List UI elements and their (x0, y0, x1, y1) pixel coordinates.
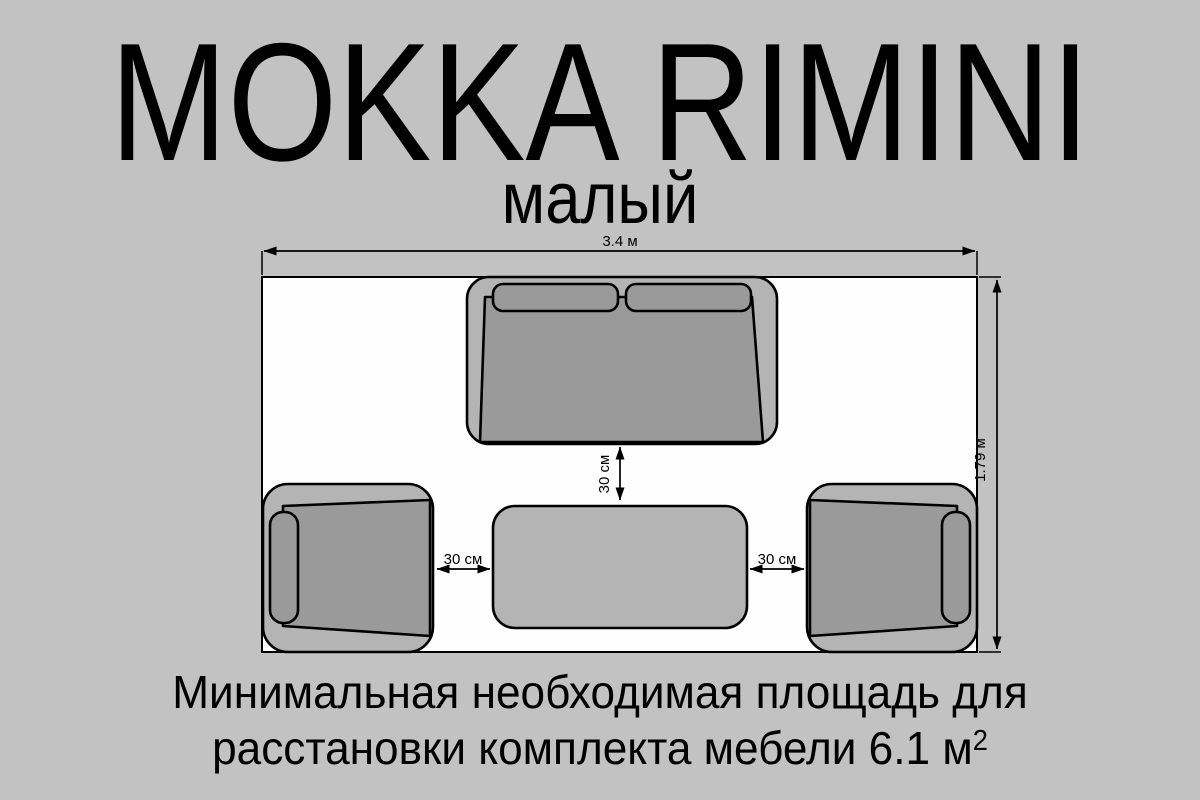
table-right-chair-gap-dimension: 30 см (750, 551, 804, 569)
sofa-back-cushion-right (626, 284, 751, 311)
left-chair-table-gap-label: 30 см (444, 551, 483, 568)
left-chair-table-gap-dimension: 30 см (437, 551, 490, 569)
room-width-dimension: 3.4 м (262, 233, 977, 275)
left-armchair-seat (283, 500, 430, 636)
sofa-table-gap-label: 30 см (596, 455, 613, 494)
caption-line2-text: расстановки комплекта мебели 6.1 м (212, 722, 973, 774)
right-armchair-back-cushion (942, 512, 970, 623)
page: MOKKA RIMINI малый (0, 0, 1200, 800)
caption-line1: Минимальная необходимая площадь для (24, 664, 1176, 720)
caption-area-superscript: 2 (973, 725, 988, 757)
table-right-chair-gap-label: 30 см (758, 551, 797, 568)
room-height-label: 1.79 м (972, 438, 989, 482)
right-armchair (807, 484, 977, 652)
right-armchair-seat (810, 500, 957, 636)
coffee-table (493, 506, 747, 628)
sofa-back-cushion-left (493, 284, 618, 311)
left-armchair-back-cushion (270, 512, 298, 623)
sofa-seat (480, 297, 763, 442)
room-width-label: 3.4 м (602, 233, 637, 250)
caption-line2: расстановки комплекта мебели 6.1 м2 (24, 720, 1176, 776)
left-armchair (263, 484, 433, 652)
caption: Минимальная необходимая площадь для расс… (24, 664, 1176, 776)
sofa (467, 277, 777, 444)
